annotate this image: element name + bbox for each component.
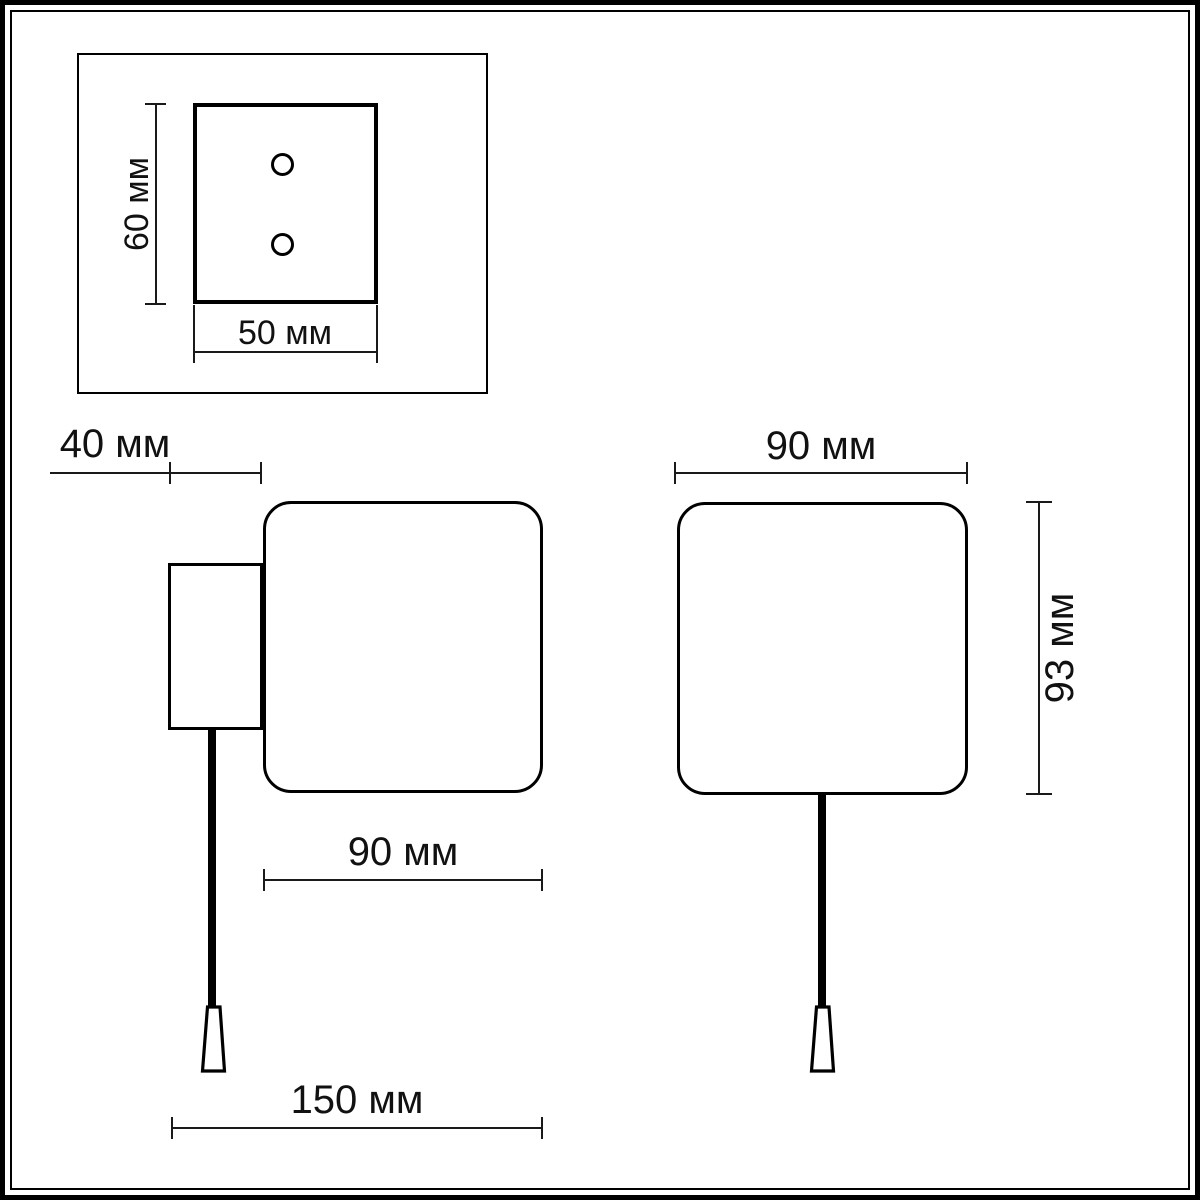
dim-tick (145, 303, 166, 305)
dim-tick (966, 462, 968, 484)
dim-label-shade-height: 93 мм (1038, 568, 1082, 728)
dim-label-shade-width-side: 90 мм (333, 834, 473, 872)
pull-knob-side (198, 1005, 229, 1073)
dim-label-plate-width: 50 мм (215, 314, 355, 350)
dim-tick (1026, 793, 1052, 795)
dim-tick (1026, 501, 1052, 503)
dim-line-shade-width-side (264, 879, 542, 881)
lamp-shade-side (263, 501, 543, 793)
dim-label-bracket-depth: 40 мм (50, 426, 180, 464)
dim-ext-line (193, 305, 195, 363)
dim-label-shade-width-front: 90 мм (751, 428, 891, 466)
mounting-plate (193, 103, 378, 304)
wall-bracket-side (168, 563, 263, 730)
technical-drawing-page: 60 мм 50 мм 40 мм 90 мм 150 мм 90 мм 93 … (0, 0, 1200, 1200)
pull-cord-side (208, 728, 216, 1008)
dim-line-overall-width (172, 1127, 543, 1129)
dim-tick (145, 103, 166, 105)
pull-cord-front (818, 793, 826, 1008)
dim-tick (674, 462, 676, 484)
dim-tick (541, 869, 543, 891)
pull-knob-front (807, 1005, 838, 1073)
mounting-hole-top (271, 153, 294, 176)
dim-tick (260, 462, 262, 484)
mounting-hole-bottom (271, 233, 294, 256)
dim-ext-line (376, 305, 378, 363)
dim-line-shade-width-front (675, 472, 968, 474)
lamp-shade-front (677, 502, 968, 795)
dim-tick (541, 1117, 543, 1139)
dim-label-overall-width: 150 мм (277, 1082, 437, 1120)
dim-label-plate-height: 60 мм (115, 134, 159, 274)
dim-tick (263, 869, 265, 891)
dim-line-bracket-depth (50, 472, 262, 474)
dim-tick (171, 1117, 173, 1139)
